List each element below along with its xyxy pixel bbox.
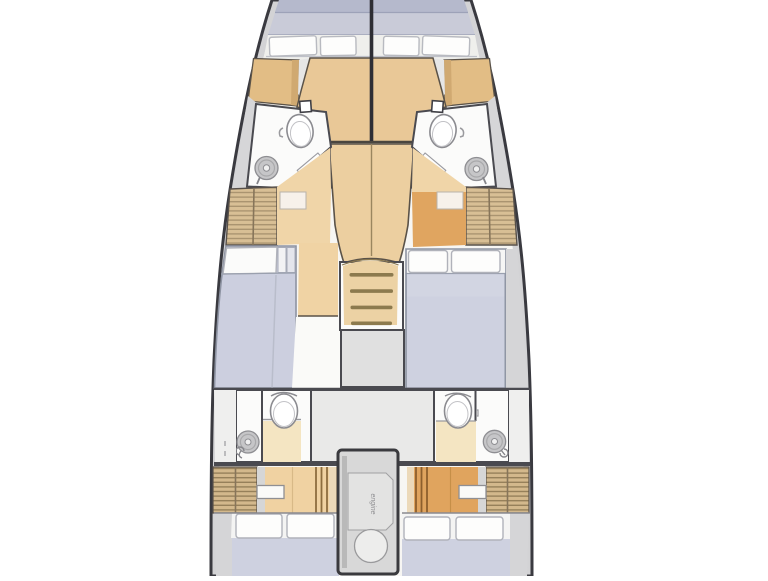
svg-text:engine: engine	[369, 493, 376, 514]
